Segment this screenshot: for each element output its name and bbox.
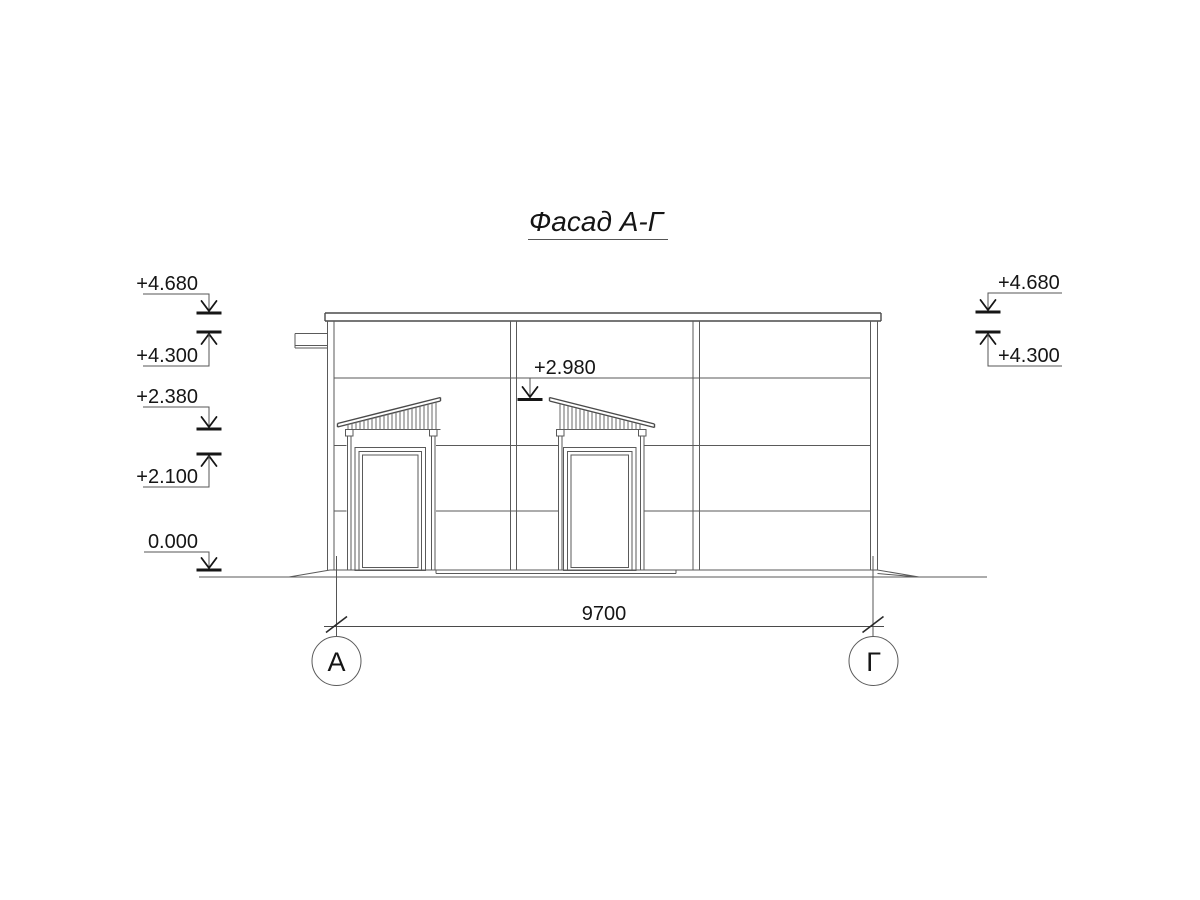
axis-bubble-g: Г bbox=[849, 637, 898, 686]
door-1 bbox=[355, 448, 426, 571]
door-2 bbox=[564, 448, 637, 571]
elevation-marker-left-2100: +2.100 bbox=[136, 454, 221, 488]
elevation-leader bbox=[144, 552, 209, 567]
elevation-label: +4.680 bbox=[998, 272, 1060, 294]
dimension-9700: 9700 bbox=[324, 556, 884, 637]
door-1-frame-outer bbox=[355, 448, 426, 571]
elevation-marker-right-4300: +4.300 bbox=[976, 332, 1063, 367]
title-text: Фасад А-Г bbox=[529, 206, 665, 237]
elevation-label: +4.300 bbox=[998, 345, 1060, 367]
canopy-2-post-cap-right bbox=[639, 430, 647, 437]
drawing-title: Фасад А-Г bbox=[528, 206, 668, 240]
door-1-frame-mid bbox=[359, 452, 422, 571]
elevation-label: +4.300 bbox=[136, 345, 198, 367]
canopy-1-hatching bbox=[348, 402, 436, 429]
canopy-2-post-cap-left bbox=[557, 430, 565, 437]
elevation-label: 0.000 bbox=[148, 531, 198, 553]
parapet-cap bbox=[325, 313, 881, 321]
elevation-marker-right-4680: +4.680 bbox=[976, 272, 1063, 312]
elevation-leader bbox=[143, 294, 209, 310]
elevation-label: +2.100 bbox=[136, 466, 198, 488]
dimension-value: 9700 bbox=[582, 603, 627, 625]
facade-panel-bands bbox=[334, 378, 871, 511]
canopy-1-top-chord bbox=[338, 398, 441, 428]
elevation-label: +4.680 bbox=[136, 273, 198, 295]
elevation-marker-left-2380: +2.380 bbox=[136, 386, 221, 429]
axis-letter-g: Г bbox=[866, 647, 881, 677]
elevation-marker-left-4680: +4.680 bbox=[136, 273, 221, 313]
canopy-2 bbox=[550, 398, 655, 571]
facade-elevation-drawing: Фасад А-Г bbox=[0, 0, 1200, 900]
building-facade bbox=[199, 313, 987, 577]
elevation-marker-left-0000: 0.000 bbox=[144, 531, 222, 570]
elevation-leader bbox=[143, 407, 209, 426]
plinth bbox=[289, 570, 919, 577]
drawing-sheet: Фасад А-Г bbox=[0, 0, 1200, 900]
axis-letter-a: А bbox=[327, 647, 345, 677]
elevation-label: +2.980 bbox=[534, 357, 596, 379]
canopy-2-top-chord bbox=[550, 398, 655, 428]
canopy-1-post-cap-left bbox=[346, 430, 354, 437]
elevation-label: +2.380 bbox=[136, 386, 198, 408]
door-1-leaf bbox=[363, 455, 419, 568]
canopy-1-post-cap-right bbox=[430, 430, 438, 437]
door-2-frame-mid bbox=[568, 452, 633, 571]
elevation-leader bbox=[988, 293, 1062, 309]
elevation-leader bbox=[530, 378, 597, 396]
axis-bubble-a: А bbox=[312, 637, 361, 686]
elevation-marker-left-4300: +4.300 bbox=[136, 332, 221, 367]
door-2-leaf bbox=[571, 455, 629, 568]
door-2-frame-outer bbox=[564, 448, 637, 571]
side-canopy bbox=[295, 334, 328, 349]
